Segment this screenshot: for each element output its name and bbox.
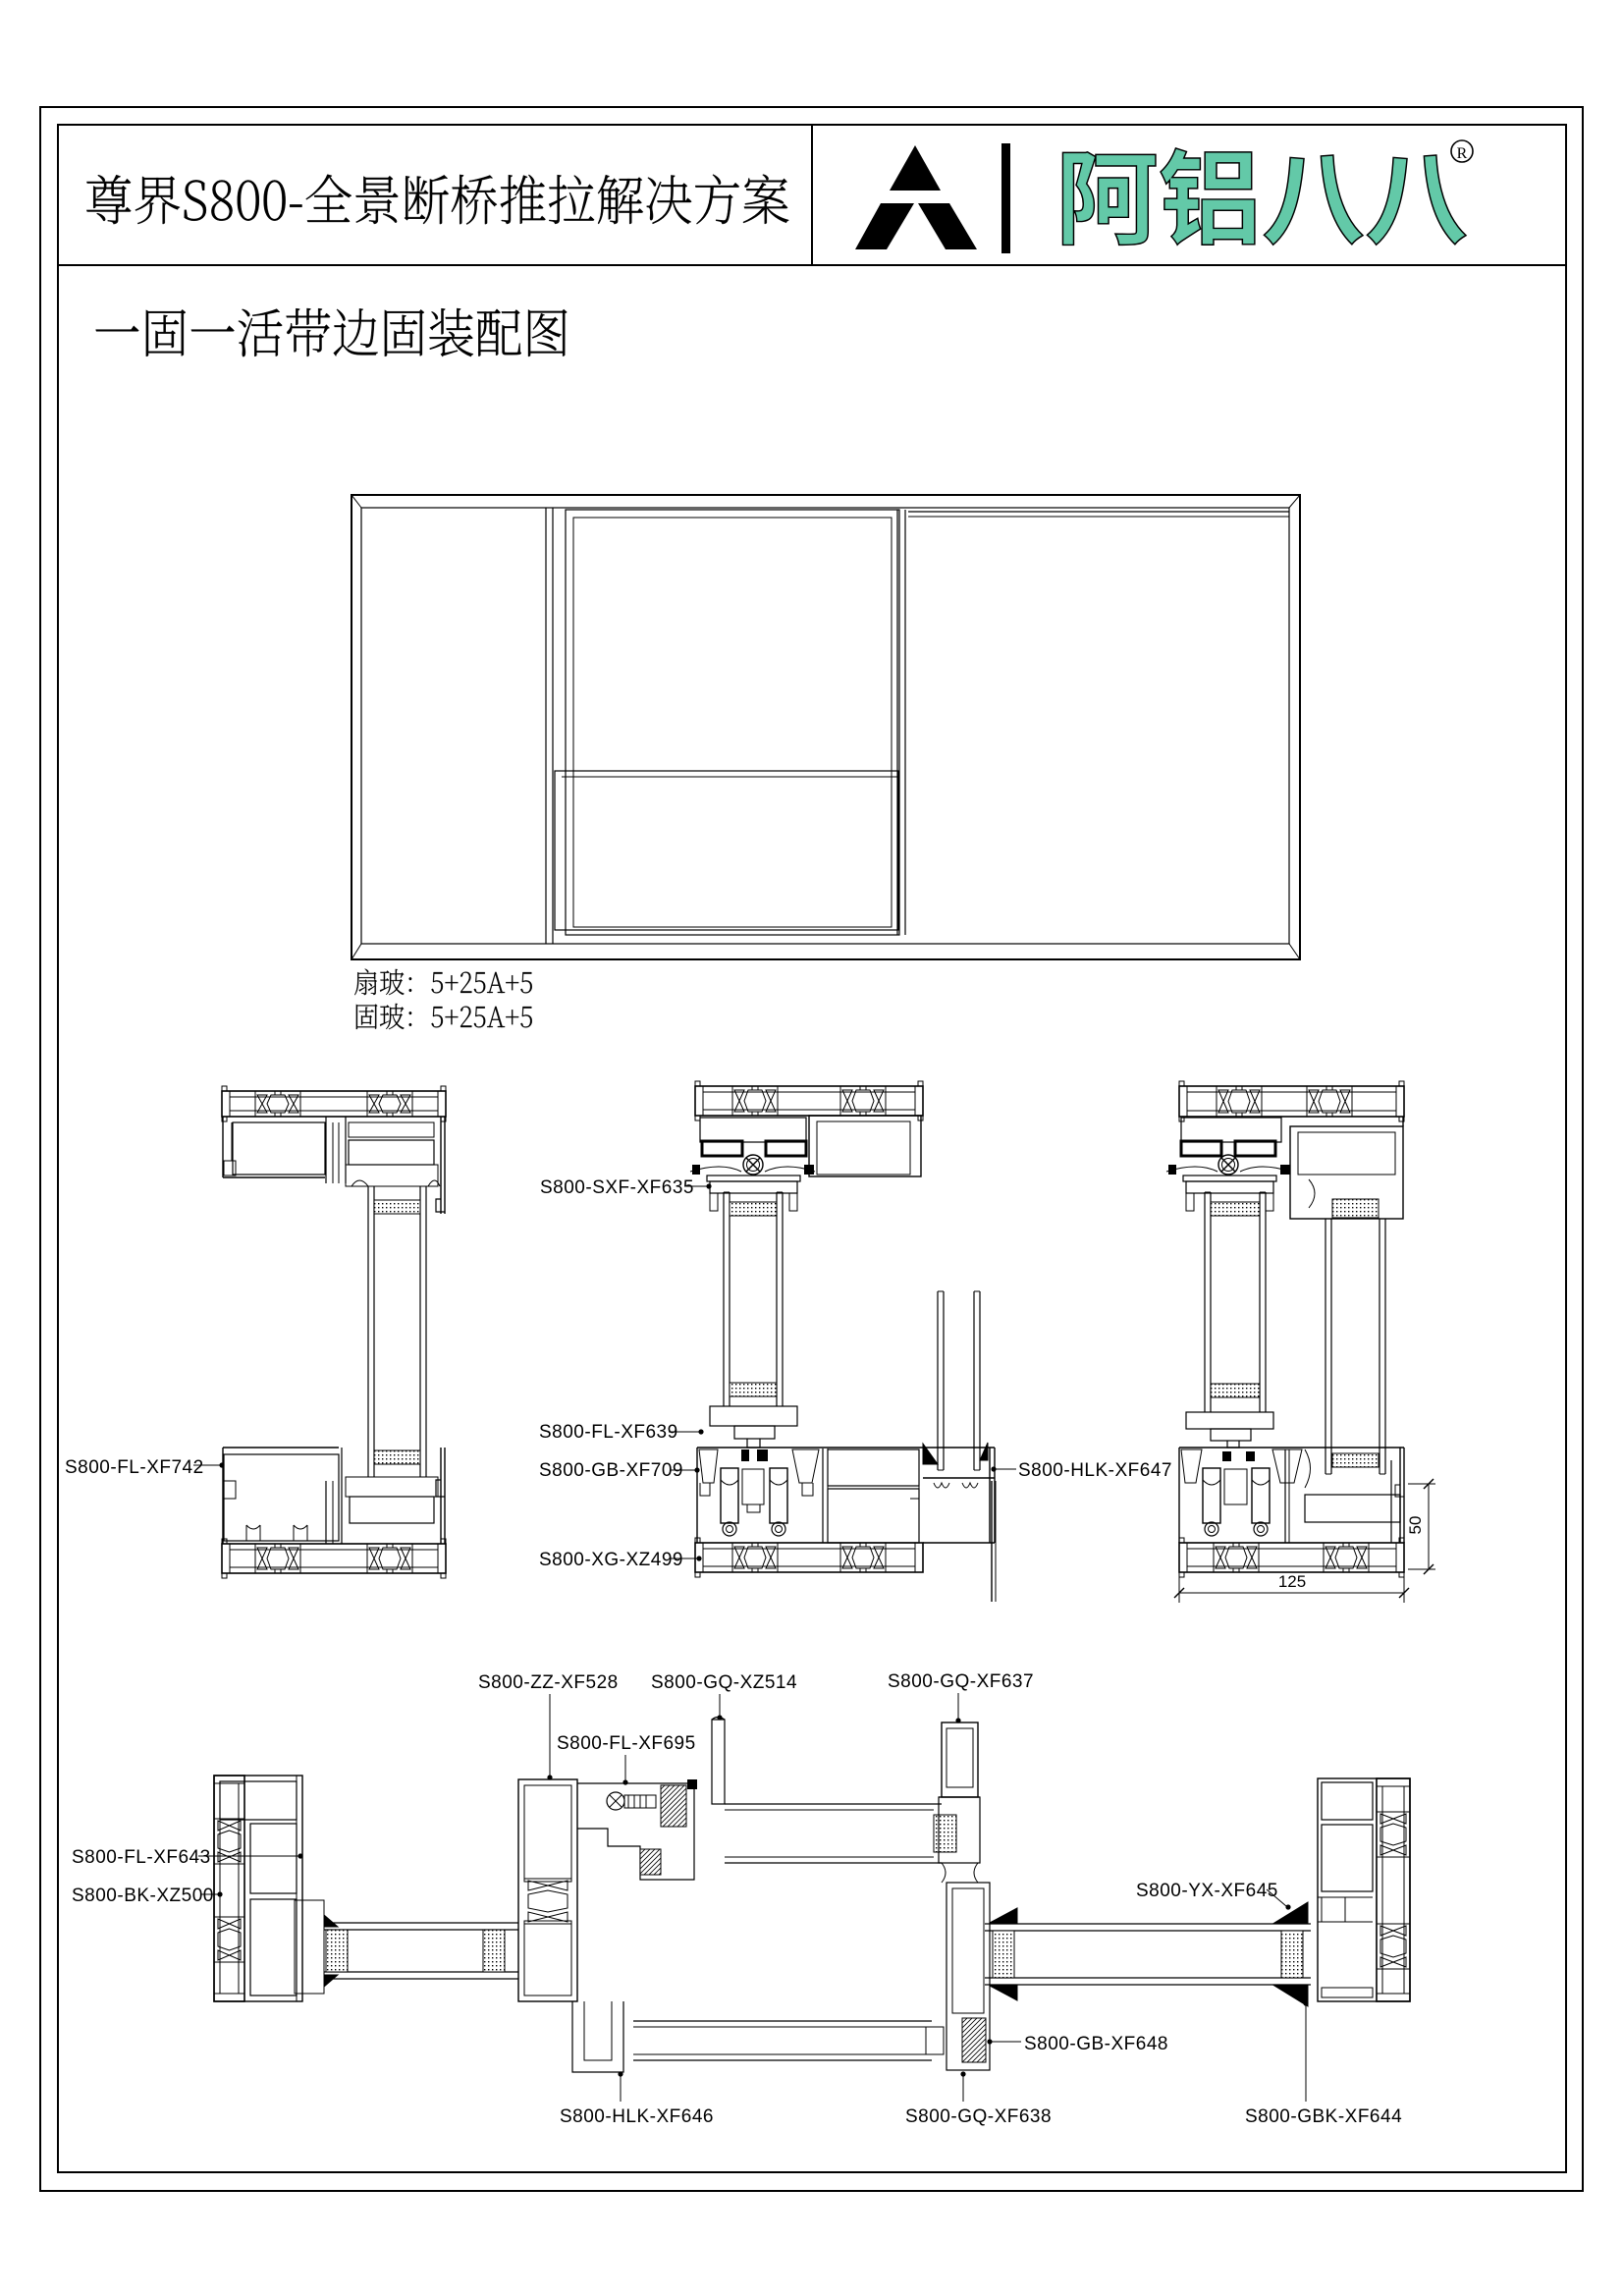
svg-text:125: 125 — [1278, 1572, 1306, 1591]
svg-text:R: R — [1457, 145, 1468, 162]
svg-text:S800-BK-XZ500: S800-BK-XZ500 — [72, 1886, 214, 1906]
svg-text:S800-GBK-XF644: S800-GBK-XF644 — [1245, 2106, 1402, 2127]
svg-text:S800-GQ-XF638: S800-GQ-XF638 — [905, 2106, 1052, 2127]
svg-text:S800-FL-XF742: S800-FL-XF742 — [65, 1457, 204, 1478]
svg-text:S800-GQ-XF637: S800-GQ-XF637 — [888, 1671, 1034, 1692]
svg-text:S800-GB-XF648: S800-GB-XF648 — [1024, 2034, 1168, 2054]
svg-text:S800-FL-XF639: S800-FL-XF639 — [539, 1422, 678, 1443]
svg-text:S800-GB-XF709: S800-GB-XF709 — [539, 1460, 683, 1481]
svg-text:S800-SXF-XF635: S800-SXF-XF635 — [540, 1177, 694, 1198]
svg-text:S800-FL-XF643: S800-FL-XF643 — [72, 1847, 211, 1868]
svg-text:S800-GQ-XZ514: S800-GQ-XZ514 — [651, 1672, 797, 1693]
svg-text:S800-HLK-XF647: S800-HLK-XF647 — [1018, 1460, 1172, 1481]
svg-text:S800-HLK-XF646: S800-HLK-XF646 — [560, 2106, 714, 2127]
svg-text:S800-XG-XZ499: S800-XG-XZ499 — [539, 1550, 683, 1570]
svg-text:S800-FL-XF695: S800-FL-XF695 — [557, 1733, 696, 1754]
svg-text:50: 50 — [1406, 1516, 1425, 1535]
svg-text:S800-YX-XF645: S800-YX-XF645 — [1136, 1881, 1278, 1901]
svg-text:S800-ZZ-XF528: S800-ZZ-XF528 — [478, 1672, 619, 1693]
